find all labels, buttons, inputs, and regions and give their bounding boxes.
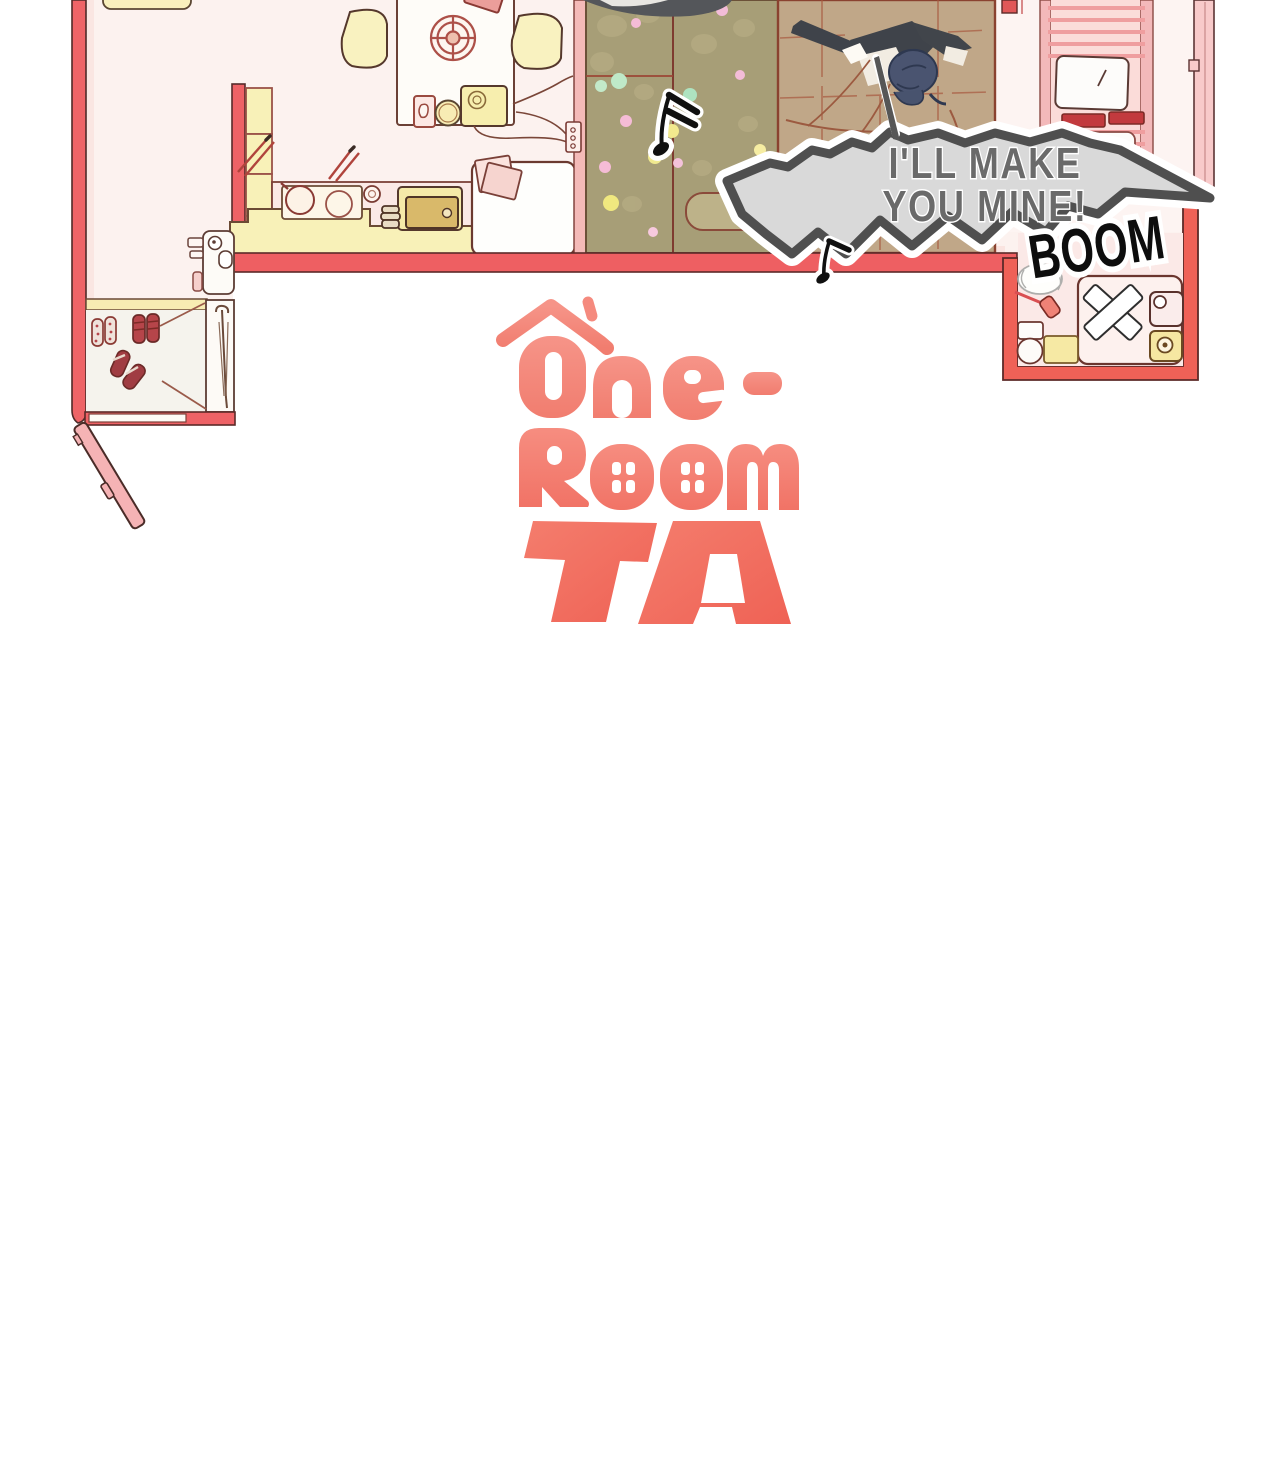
svg-text:I'LL MAKE: I'LL MAKE [889, 139, 1082, 188]
